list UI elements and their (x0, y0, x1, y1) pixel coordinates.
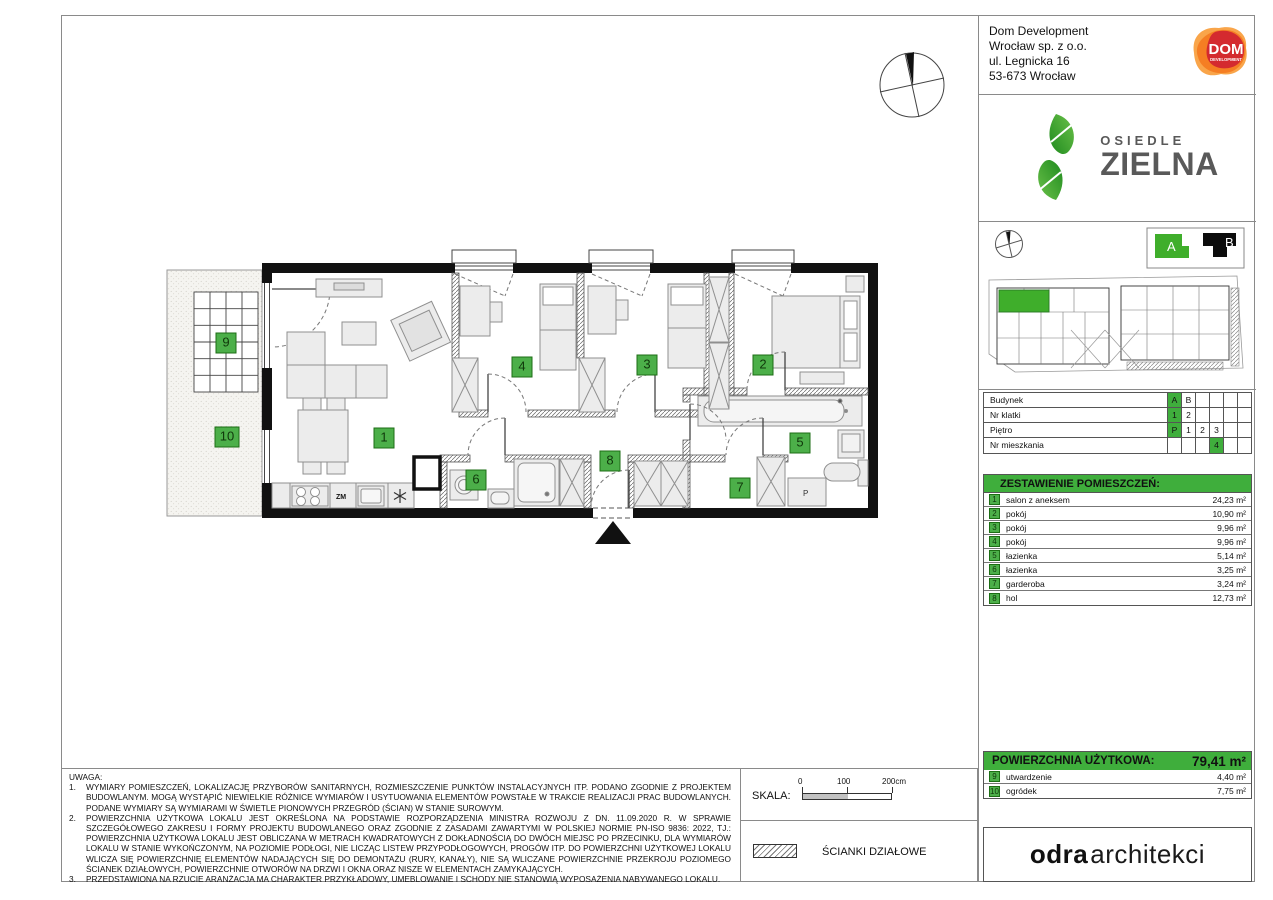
partition-legend-label: ŚCIANKI DZIAŁOWE (822, 846, 927, 858)
compass-needle (906, 52, 914, 86)
estate-name: OSIEDLE ZIELNA (1100, 133, 1219, 183)
note-item: 2. POWIERZCHNIA UŻYTKOWA LOKALU JEST OKR… (69, 813, 731, 874)
entrance-arrow (595, 521, 631, 544)
room-number-badge: 7 (989, 578, 1000, 589)
floorplan-sheet: ZM P 12345678910 Dom Development Wrocław… (0, 0, 1273, 900)
outdoor-list: 9 utwardzenie 4,40 m² 10 ogródek 7,75 m² (983, 770, 1252, 799)
site-plan-drawing: A B (979, 222, 1256, 390)
room-row: 6 łazienka 3,25 m² (984, 563, 1251, 577)
room-number-badge: 1 (989, 494, 1000, 505)
room-row: 8 hol 12,73 m² (984, 591, 1251, 605)
highlighted-unit (999, 290, 1049, 312)
estate-logo: OSIEDLE ZIELNA (979, 95, 1256, 222)
paving-grid (194, 292, 258, 392)
rooms-header-bar: ZESTAWIENIE POMIESZCZEŃ: (979, 474, 1256, 492)
washer-spot-label: P (803, 489, 808, 498)
table-row-klatka: Nr klatki 1 2 (984, 408, 1251, 423)
room-number-badge: 5 (989, 550, 1000, 561)
room-number-badge: 2 (989, 508, 1000, 519)
room-row: 1 salon z aneksem 24,23 m² (984, 493, 1251, 507)
notes: UWAGA: 1. WYMIARY POMIESZCZEŃ, LOKALIZAC… (61, 768, 741, 882)
rooms-list: 1 salon z aneksem 24,23 m² 2 pokój 10,90… (983, 492, 1252, 606)
outdoor-row: 9 utwardzenie 4,40 m² (984, 770, 1251, 784)
room-number-badge: 4 (989, 536, 1000, 547)
room-number-badge: 10 (989, 786, 1000, 797)
note-item: 3. PRZEDSTAWIONA NA RZUCIE ARANŻACJA MA … (69, 874, 731, 884)
developer-info: Dom Development Wrocław sp. z o.o. ul. L… (979, 15, 1256, 95)
room-number-badge: 3 (989, 522, 1000, 533)
site-plan: A B (979, 222, 1256, 390)
site-compass (996, 231, 1023, 258)
floor-plan-drawing: ZM P (0, 0, 978, 768)
rooms-header: ZESTAWIENIE POMIESZCZEŃ: (983, 474, 1252, 492)
site-buildings (997, 286, 1229, 364)
table-row-mieszkanie: Nr mieszkania 4 (984, 438, 1251, 453)
building-b-label: B (1225, 235, 1234, 250)
building-legend: A B (1147, 228, 1244, 268)
architect-logo-bold: odra (1030, 839, 1088, 870)
north-compass (880, 52, 944, 117)
garden-area (167, 270, 262, 516)
site-hatch-bottom (1127, 362, 1223, 370)
room-row: 5 łazienka 5,14 m² (984, 549, 1251, 563)
estate-name-bottom: ZIELNA (1100, 146, 1219, 183)
notes-title: UWAGA: (69, 772, 731, 782)
architect-logo-light: architekci (1090, 839, 1205, 870)
window-left (265, 430, 270, 483)
room-number-badge: 8 (989, 593, 1000, 604)
usable-area-label: POWIERZCHNIA UŻYTKOWA: (992, 755, 1154, 767)
scale-bar (802, 793, 892, 800)
title-block-panel: Dom Development Wrocław sp. z o.o. ul. L… (978, 15, 1255, 882)
site-hatch-right (1231, 288, 1239, 366)
dom-logo-text: DOM (1209, 41, 1244, 58)
room-number-badge: 9 (989, 771, 1000, 782)
room-row: 4 pokój 9,96 m² (984, 535, 1251, 549)
usable-area-bar: POWIERZCHNIA UŻYTKOWA: 79,41 m² (979, 751, 1256, 770)
table-row-pietro: Piętro P 1 2 3 (984, 423, 1251, 438)
dom-development-logo: DOM DEVELOPMENT (1186, 21, 1252, 83)
kitchen-sink-label: ZM (336, 494, 346, 501)
dom-logo-subtext: DEVELOPMENT (1210, 57, 1242, 62)
zielna-leaf-icon (1016, 110, 1096, 206)
room-row: 3 pokój 9,96 m² (984, 521, 1251, 535)
note-item: 1. WYMIARY POMIESZCZEŃ, LOKALIZACJĘ PRZY… (69, 782, 731, 813)
table-row-budynek: Budynek A B (984, 393, 1251, 408)
outdoor-row: 10 ogródek 7,75 m² (984, 784, 1251, 798)
scale-label: SKALA: (752, 790, 791, 802)
hatch-swatch-icon (753, 844, 797, 858)
room-number-badge: 6 (989, 564, 1000, 575)
building-a-label: A (1167, 239, 1176, 254)
architect-logo: odra architekci (983, 827, 1252, 882)
room-row: 7 garderoba 3,24 m² (984, 577, 1251, 591)
scale-box: SKALA: 0 100 200cm (740, 768, 978, 821)
usable-area-value: 79,41 m² (1192, 754, 1246, 769)
room-row: 2 pokój 10,90 m² (984, 507, 1251, 521)
partition-legend: ŚCIANKI DZIAŁOWE (740, 820, 978, 882)
